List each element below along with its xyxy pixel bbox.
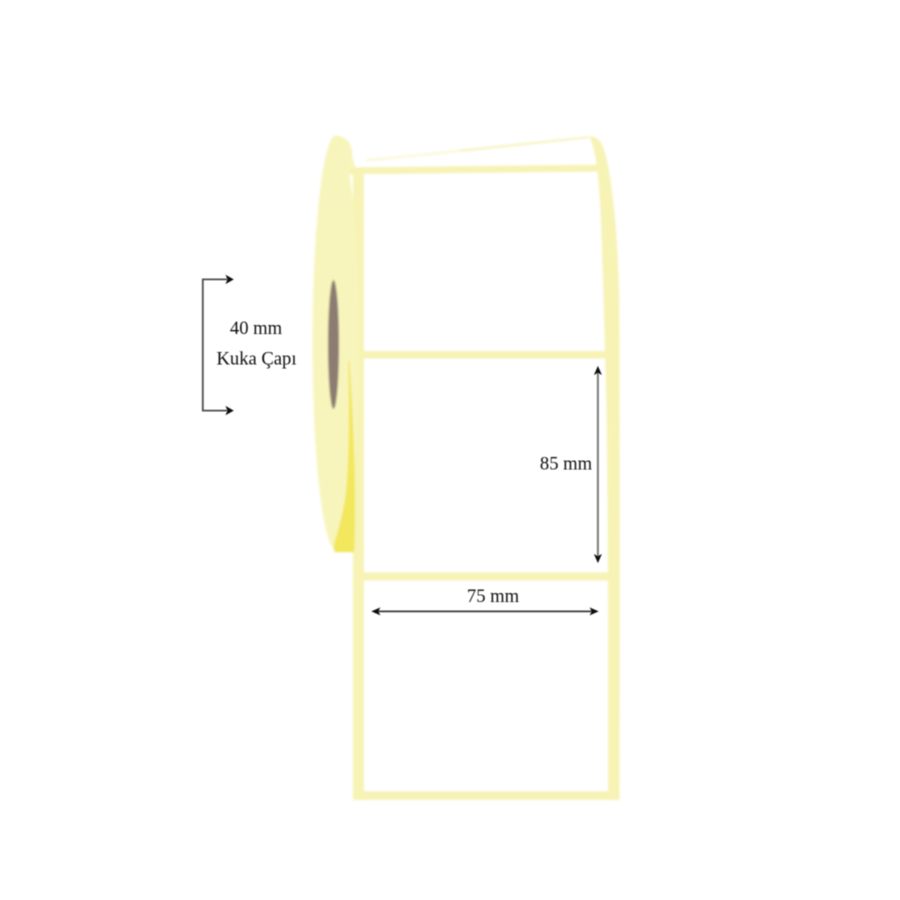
svg-text:75 mm: 75 mm [467, 586, 520, 607]
svg-text:Kuka Çapı: Kuka Çapı [216, 349, 296, 370]
svg-text:85 mm: 85 mm [540, 454, 593, 475]
svg-text:40 mm: 40 mm [230, 318, 283, 339]
